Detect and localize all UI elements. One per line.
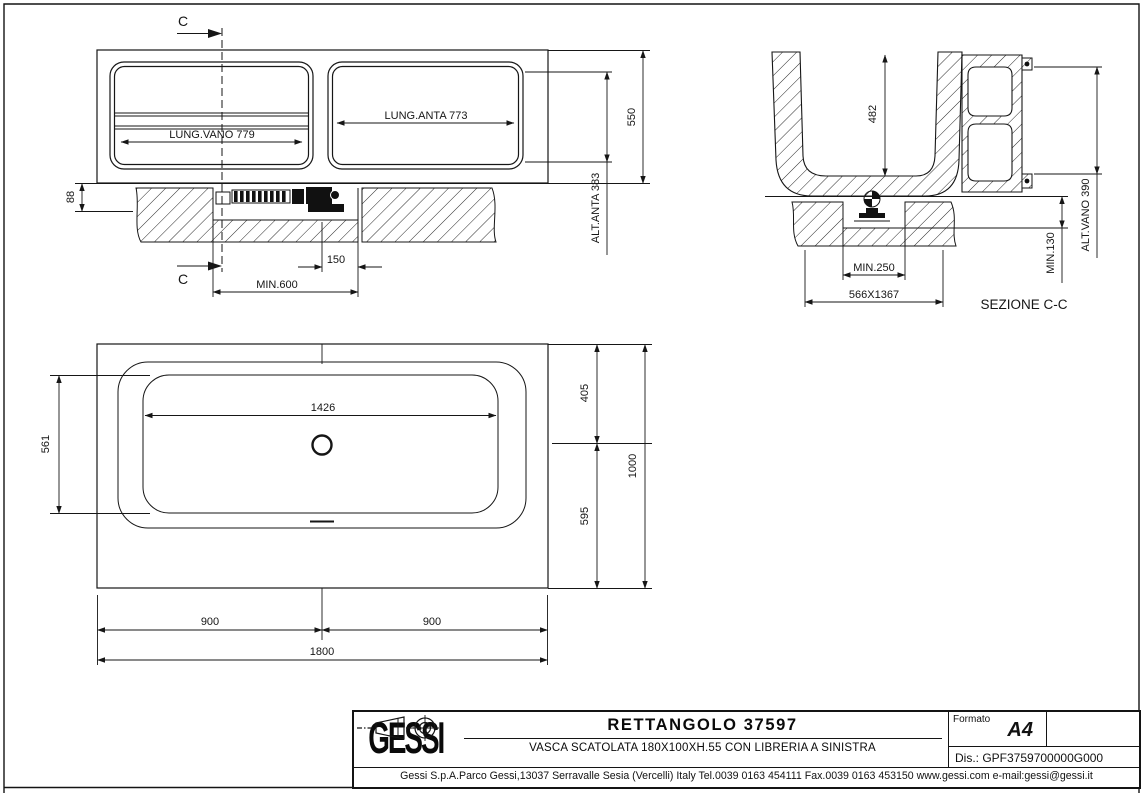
dim-150: 150 (327, 254, 345, 266)
section-marker-bottom: C (178, 271, 188, 287)
format-row: Formato A4 (949, 712, 1139, 747)
drain-trap-elevation (216, 187, 344, 212)
drawing-number: Dis.: GPF3759700000G000 (949, 747, 1139, 767)
dim-alt-vano: ALT.VANO 390 (1080, 179, 1092, 252)
dim-900-left: 900 (201, 616, 219, 628)
dim-min-130: MIN.130 (1045, 232, 1057, 274)
dim-566x1367: 566X1367 (849, 289, 899, 301)
section-view-label: SEZIONE C-C (980, 297, 1067, 312)
drawing-subtitle: VASCA SCATOLATA 180X100XH.55 CON LIBRERI… (457, 742, 948, 754)
title-divider (464, 738, 942, 739)
drawing-title: RETTANGOLO 37597 (457, 716, 948, 735)
dim-482: 482 (867, 105, 879, 123)
company-address: Gessi S.p.A.Parco Gessi,13037 Serravalle… (354, 768, 1139, 787)
first-angle-projection-icon (1047, 712, 1139, 746)
dim-1426: 1426 (311, 402, 335, 414)
dim-405: 405 (579, 384, 591, 402)
dim-lung-vano: LUNG.VANO 779 (169, 129, 254, 141)
technical-drawing-sheet: C C LUNG.VANO 779 LUNG.ANTA 773 88 150 M… (0, 0, 1143, 793)
dim-550: 550 (626, 108, 638, 126)
drain-hole-plan (313, 436, 332, 455)
title-block-main-row: GESSI RETTANGOLO 37597 VASCA SCATOLATA 1… (354, 712, 1139, 768)
dim-900-right: 900 (423, 616, 441, 628)
format-cell: Formato A4 (949, 712, 1047, 746)
dim-min-600: MIN.600 (256, 279, 298, 291)
section-marker-top: C (178, 13, 188, 29)
drawing-canvas: C C LUNG.VANO 779 LUNG.ANTA 773 88 150 M… (0, 0, 1143, 793)
dim-lung-anta: LUNG.ANTA 773 (385, 110, 468, 122)
plan-view (50, 344, 652, 665)
dim-min-250: MIN.250 (853, 262, 895, 274)
front-elevation-view (75, 28, 650, 297)
dim-595: 595 (579, 507, 591, 525)
dim-alt-anta: ALT.ANTA 383 (590, 173, 602, 244)
dim-561: 561 (40, 435, 52, 453)
title-block: GESSI RETTANGOLO 37597 VASCA SCATOLATA 1… (352, 710, 1141, 789)
title-cell: RETTANGOLO 37597 VASCA SCATOLATA 180X100… (457, 712, 948, 767)
title-block-right: Formato A4 (948, 712, 1139, 767)
format-label: Formato (953, 714, 990, 725)
dim-1800: 1800 (310, 646, 334, 658)
dim-88: 88 (65, 191, 77, 203)
format-value: A4 (1007, 719, 1033, 742)
dim-1000: 1000 (627, 454, 639, 478)
